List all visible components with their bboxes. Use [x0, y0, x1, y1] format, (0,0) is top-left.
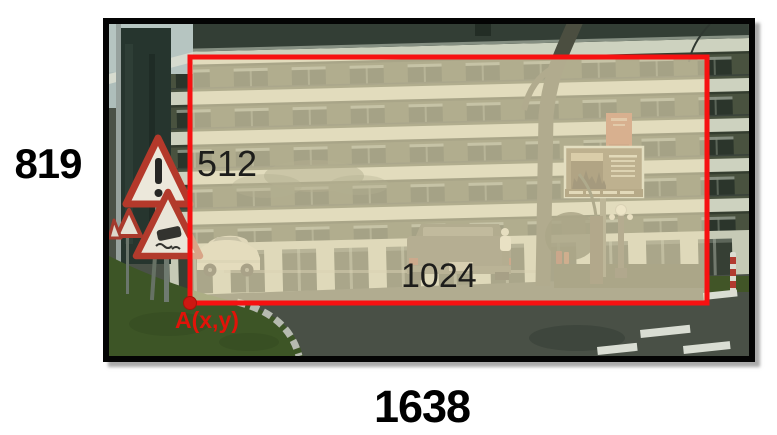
- image-width-label: 1638: [348, 384, 496, 429]
- crop-width-label: 1024: [401, 259, 477, 293]
- photo-frame: 512 1024 A(x,y): [103, 18, 755, 362]
- roof-chimney: [475, 24, 491, 36]
- figure-canvas: 819: [0, 0, 777, 435]
- image-height-label: 819: [12, 143, 84, 185]
- anchor-point-label: A(x,y): [175, 307, 239, 334]
- traffic-bollard: [730, 252, 736, 296]
- grass-strip-right: [705, 276, 749, 292]
- crop-height-label: 512: [197, 146, 257, 182]
